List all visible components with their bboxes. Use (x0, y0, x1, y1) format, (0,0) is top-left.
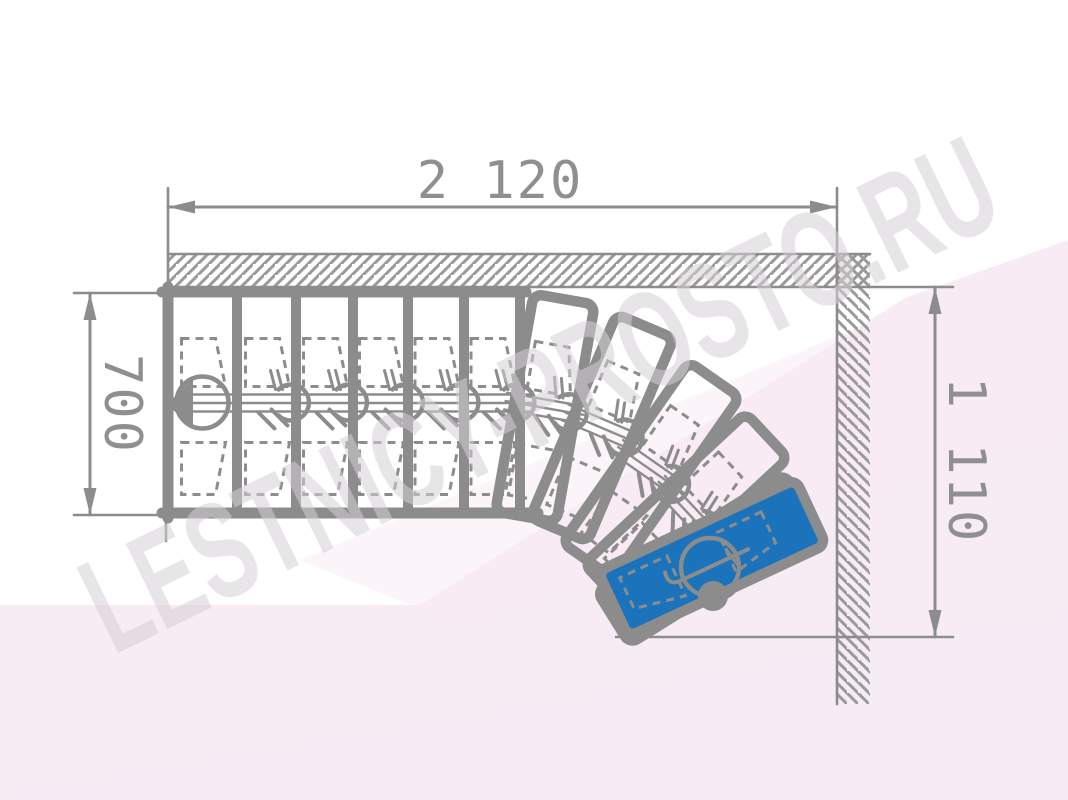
stair-plan-page: 2 120 700 1 110 LESTNICY-PROSTO.RU (0, 0, 1068, 800)
dimension-label-right-height: 1 110 (940, 377, 992, 544)
dimension-label-stair-width: 700 (96, 354, 148, 454)
dimension-label-total-width: 2 120 (417, 155, 584, 207)
stair-plan-drawing (0, 0, 1068, 800)
